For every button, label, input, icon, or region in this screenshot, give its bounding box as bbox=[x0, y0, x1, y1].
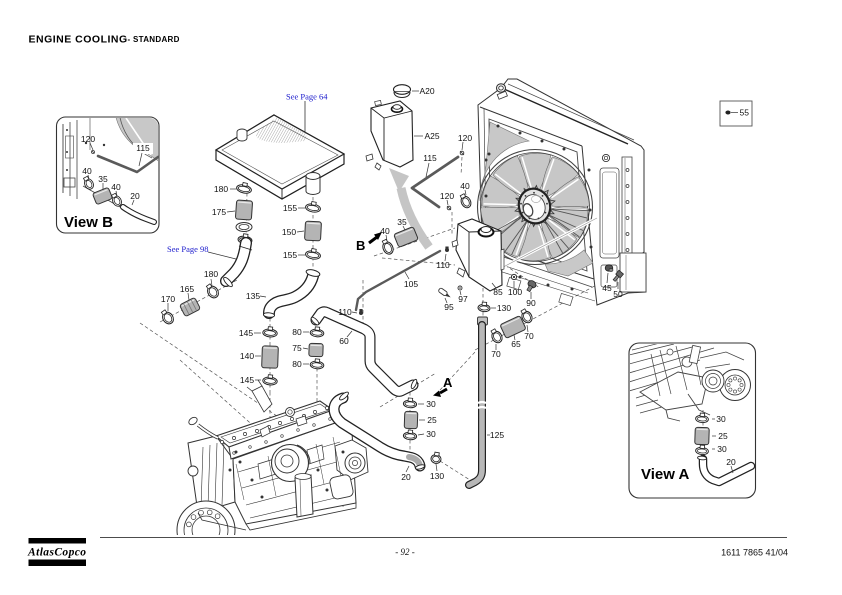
svg-text:25: 25 bbox=[718, 431, 728, 441]
svg-text:AtlasCopco: AtlasCopco bbox=[27, 547, 86, 559]
svg-text:175: 175 bbox=[212, 207, 226, 217]
svg-text:40: 40 bbox=[460, 181, 470, 191]
svg-text:View A: View A bbox=[641, 466, 690, 483]
svg-text:- 92 -: - 92 - bbox=[395, 547, 415, 557]
svg-text:170: 170 bbox=[161, 294, 175, 304]
svg-text:110: 110 bbox=[436, 260, 450, 270]
svg-text:70: 70 bbox=[524, 331, 534, 341]
svg-text:40: 40 bbox=[82, 166, 92, 176]
svg-text:80: 80 bbox=[292, 359, 302, 369]
svg-text:145: 145 bbox=[239, 328, 253, 338]
svg-text:115: 115 bbox=[136, 143, 150, 153]
svg-text:150: 150 bbox=[282, 227, 296, 237]
svg-text:60: 60 bbox=[339, 336, 349, 346]
svg-text:97: 97 bbox=[458, 294, 468, 304]
svg-text:A20: A20 bbox=[419, 86, 434, 96]
svg-text:35: 35 bbox=[397, 217, 407, 227]
svg-text:30: 30 bbox=[717, 444, 727, 454]
svg-text:45: 45 bbox=[602, 283, 612, 293]
svg-text:100: 100 bbox=[508, 287, 522, 297]
svg-text:50: 50 bbox=[613, 289, 623, 299]
svg-text:90: 90 bbox=[526, 298, 536, 308]
svg-text:40: 40 bbox=[111, 182, 121, 192]
svg-text:80: 80 bbox=[292, 327, 302, 337]
svg-text:30: 30 bbox=[426, 429, 436, 439]
svg-text:70: 70 bbox=[491, 349, 501, 359]
svg-text:105: 105 bbox=[404, 279, 418, 289]
svg-text:145: 145 bbox=[240, 375, 254, 385]
svg-text:125: 125 bbox=[490, 430, 504, 440]
svg-text:20: 20 bbox=[130, 191, 140, 201]
svg-text:20: 20 bbox=[401, 472, 411, 482]
svg-text:30: 30 bbox=[426, 399, 436, 409]
svg-text:- STANDARD: - STANDARD bbox=[128, 35, 180, 44]
svg-text:120: 120 bbox=[440, 191, 454, 201]
svg-text:55: 55 bbox=[740, 108, 750, 118]
svg-text:A25: A25 bbox=[424, 131, 439, 141]
svg-text:95: 95 bbox=[444, 302, 454, 312]
svg-text:75: 75 bbox=[292, 343, 302, 353]
svg-text:155: 155 bbox=[283, 250, 297, 260]
svg-text:155: 155 bbox=[283, 203, 297, 213]
svg-text:See Page 98: See Page 98 bbox=[167, 244, 209, 254]
svg-text:180: 180 bbox=[204, 269, 218, 279]
svg-text:135: 135 bbox=[246, 291, 260, 301]
svg-text:85: 85 bbox=[493, 287, 503, 297]
svg-text:120: 120 bbox=[81, 134, 95, 144]
svg-text:120: 120 bbox=[458, 133, 472, 143]
svg-text:40: 40 bbox=[380, 226, 390, 236]
svg-text:1611 7865 41/04: 1611 7865 41/04 bbox=[721, 548, 788, 558]
svg-text:View B: View B bbox=[64, 214, 113, 231]
svg-text:180: 180 bbox=[214, 184, 228, 194]
svg-text:25: 25 bbox=[427, 415, 437, 425]
svg-text:140: 140 bbox=[240, 351, 254, 361]
svg-text:See Page 64: See Page 64 bbox=[286, 92, 328, 102]
svg-text:130: 130 bbox=[497, 303, 511, 313]
svg-text:110: 110 bbox=[338, 307, 352, 317]
svg-text:65: 65 bbox=[511, 339, 521, 349]
svg-text:30: 30 bbox=[716, 414, 726, 424]
svg-text:35: 35 bbox=[98, 174, 108, 184]
svg-text:115: 115 bbox=[423, 153, 437, 163]
svg-text:130: 130 bbox=[430, 471, 444, 481]
svg-text:165: 165 bbox=[180, 284, 194, 294]
svg-text:B: B bbox=[356, 238, 365, 253]
svg-text:ENGINE COOLING: ENGINE COOLING bbox=[29, 34, 128, 46]
svg-text:A: A bbox=[443, 375, 453, 390]
svg-text:20: 20 bbox=[726, 457, 736, 467]
